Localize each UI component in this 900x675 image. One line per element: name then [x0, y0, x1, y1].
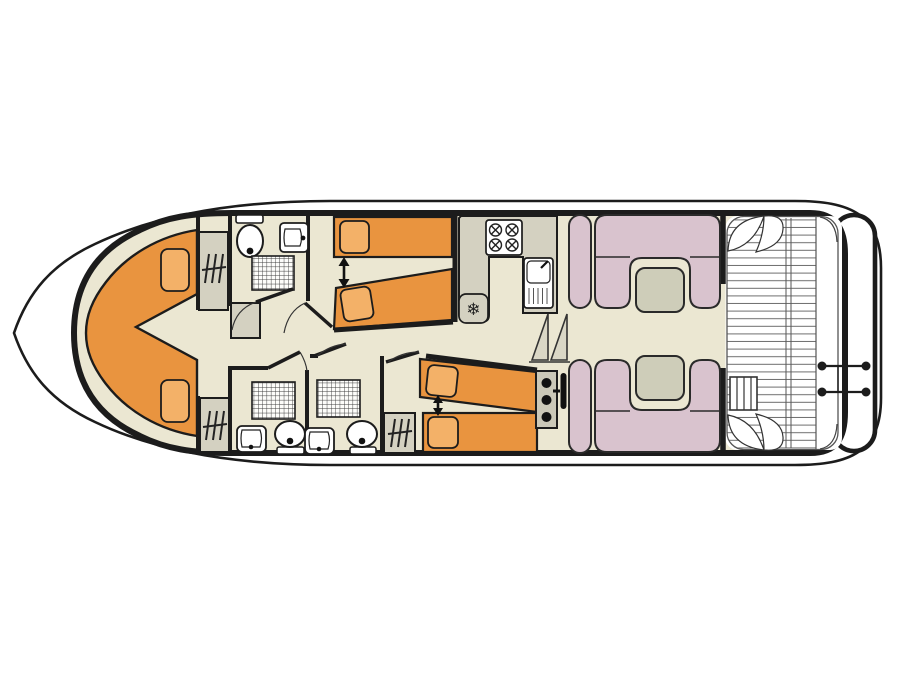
settee-cushion	[569, 215, 591, 308]
deck-steps-icon	[730, 377, 757, 410]
washbasin-icon	[280, 223, 308, 252]
instrument-dial	[542, 378, 552, 388]
instrument-dial	[542, 395, 552, 405]
shower-icon	[252, 382, 295, 419]
hob-icon	[486, 220, 522, 255]
guest-cabin-bottom	[420, 359, 537, 452]
settee-cushion	[569, 360, 591, 453]
aft-deck	[726, 216, 843, 450]
bow-pillow-top	[161, 249, 189, 291]
saloon-table-top	[636, 268, 684, 312]
washbasin-icon	[237, 426, 266, 452]
washbasin-icon	[305, 428, 334, 454]
fridge-snowflake-icon: ❄	[466, 300, 480, 320]
saloon-table-bottom	[636, 356, 684, 400]
deck-planking	[727, 217, 816, 449]
fridge-icon: ❄	[459, 294, 488, 323]
shower-icon	[252, 256, 294, 290]
galley-sink-icon	[524, 258, 553, 308]
bed-pillow	[428, 417, 458, 448]
boat-floor-plan-page: ❄	[0, 0, 900, 675]
bed-pillow	[426, 365, 459, 398]
boat-floor-plan: ❄	[0, 0, 900, 675]
bow-pillow-bottom	[161, 380, 189, 422]
shower-icon	[317, 380, 360, 417]
bed-pillow	[340, 286, 375, 322]
wardrobe-bottom-middle	[384, 413, 415, 453]
wardrobe-top	[199, 232, 228, 310]
bed-pillow	[340, 221, 369, 253]
toilet-icon	[236, 215, 263, 257]
wardrobe-bottom-left	[200, 398, 230, 452]
toilet-icon	[275, 421, 305, 454]
steering-wheel-icon	[561, 373, 567, 409]
instrument-dial	[542, 412, 552, 422]
toilet-icon	[347, 421, 377, 454]
